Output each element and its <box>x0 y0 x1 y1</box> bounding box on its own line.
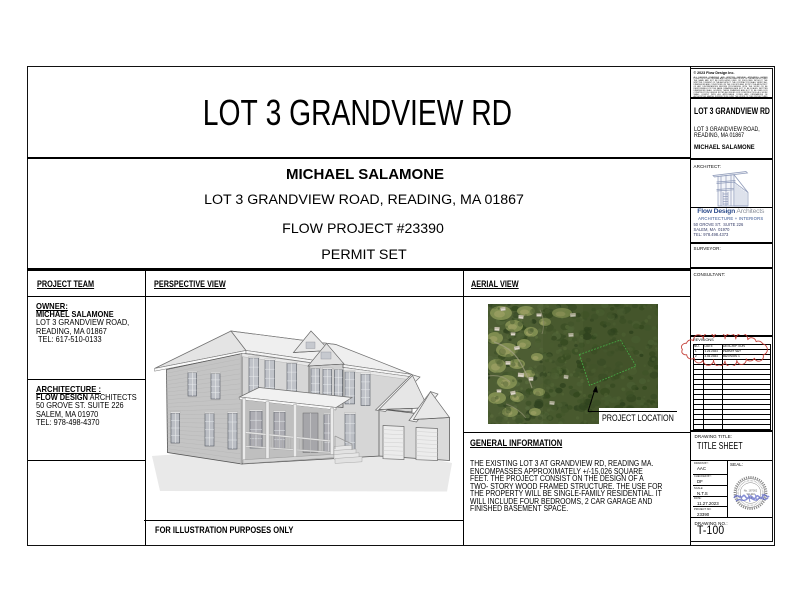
svg-text:No. 187002: No. 187002 <box>744 489 758 493</box>
